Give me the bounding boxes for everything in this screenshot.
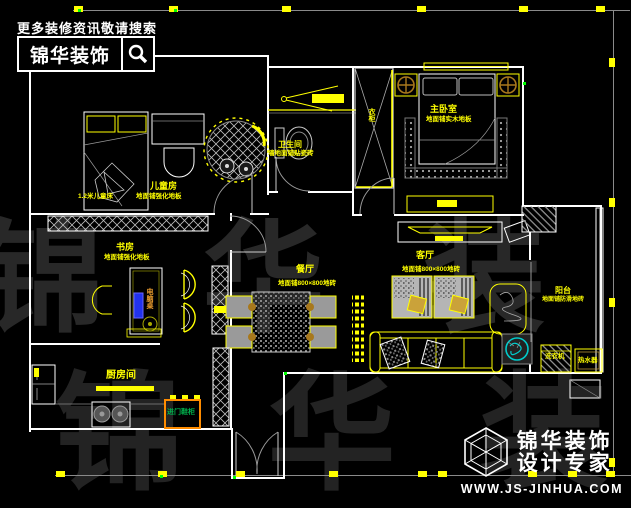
room-sub-study: 地面铺强化地板 bbox=[104, 254, 150, 261]
wall-segment bbox=[250, 213, 269, 215]
label-washer: 洗衣机 bbox=[545, 353, 565, 360]
desk-chair bbox=[164, 148, 194, 177]
wall-segment bbox=[231, 428, 233, 479]
jinhua-cube-logo bbox=[461, 425, 511, 479]
living-room bbox=[370, 221, 532, 372]
wall-segment bbox=[267, 191, 278, 193]
door-arc bbox=[230, 216, 266, 252]
snap-point bbox=[160, 475, 163, 478]
tv bbox=[408, 227, 492, 233]
wall-segment bbox=[230, 345, 232, 429]
brand-search-box[interactable]: 锦华装饰 bbox=[17, 36, 155, 72]
radiator bbox=[127, 329, 161, 337]
footer-logo-block: 锦华装饰 设计专家 WWW.JS-JINHUA.COM bbox=[461, 425, 623, 496]
snap-point bbox=[78, 9, 81, 12]
dimension-tick bbox=[519, 6, 528, 12]
chaise bbox=[490, 284, 526, 334]
wall-segment bbox=[352, 214, 362, 216]
dimension-tick bbox=[438, 471, 447, 477]
sofa bbox=[370, 332, 502, 372]
footer-url[interactable]: WWW.JS-JINHUA.COM bbox=[461, 482, 623, 496]
room-label-master: 主卧室 bbox=[430, 104, 457, 114]
column bbox=[522, 206, 556, 232]
header-tagline: 更多装修资讯敬请搜索 bbox=[17, 18, 157, 37]
snap-point bbox=[174, 9, 177, 12]
footer-brand: 锦华装饰 bbox=[517, 430, 613, 452]
search-icon[interactable] bbox=[123, 43, 153, 65]
door-arc bbox=[360, 178, 394, 214]
wall-segment bbox=[394, 214, 524, 216]
label-wardrobe: 衣柜 bbox=[367, 108, 375, 122]
label-shoe-cabinet: 进门鞋柜 bbox=[167, 409, 195, 417]
dimension-tick bbox=[282, 6, 291, 12]
room-label-kitchen: 厨房间 bbox=[106, 370, 136, 382]
wall-segment bbox=[29, 55, 31, 432]
room-label-dining: 餐厅 bbox=[296, 264, 314, 274]
monitor bbox=[134, 293, 143, 318]
label-heater: 热水器 bbox=[578, 357, 598, 364]
dining-room bbox=[226, 292, 364, 362]
room-label-children: 儿童房 bbox=[150, 181, 177, 191]
room-label-bathroom: 卫生间 bbox=[278, 140, 302, 149]
label-computer-desk: 电脑桌 bbox=[145, 288, 153, 309]
door-arcs bbox=[236, 432, 278, 474]
wall-segment bbox=[267, 55, 269, 195]
chair bbox=[92, 286, 112, 314]
wall-segment bbox=[29, 213, 215, 215]
note-children-bed: 1.2米儿童床 bbox=[78, 193, 113, 200]
room-sub-bathroom: 墙地面铺贴瓷砖 bbox=[268, 150, 314, 157]
snap-point bbox=[523, 82, 526, 85]
wall-segment bbox=[522, 66, 524, 207]
bathroom bbox=[268, 86, 356, 191]
decor-screen bbox=[352, 294, 364, 362]
master-bedroom bbox=[355, 63, 519, 214]
room-label-balcony: 阳台 bbox=[555, 286, 571, 295]
pillow bbox=[459, 78, 493, 95]
armchair bbox=[392, 276, 432, 318]
study-room bbox=[48, 216, 266, 337]
snap-point bbox=[233, 476, 236, 479]
pillow bbox=[87, 116, 115, 132]
snap-point bbox=[284, 372, 287, 375]
shower-note bbox=[312, 94, 344, 103]
wall-segment bbox=[529, 232, 531, 260]
cushion bbox=[421, 340, 445, 368]
pillow bbox=[118, 116, 146, 132]
dimension-tick bbox=[609, 298, 615, 307]
dimension-tick bbox=[609, 58, 615, 67]
armchair bbox=[434, 276, 474, 318]
dimension-tick bbox=[329, 471, 338, 477]
dimension-tick bbox=[236, 471, 245, 477]
brand-name: 锦华装饰 bbox=[19, 41, 121, 68]
dimension-tick bbox=[56, 471, 65, 477]
wall-segment bbox=[29, 343, 160, 345]
room-sub-children: 地面铺强化地板 bbox=[136, 193, 182, 200]
floorplan-canvas: 锦 华 装 饰 锦 华 装 更多装修资讯敬请搜索 锦华装饰 bbox=[0, 0, 631, 508]
dimension-tick bbox=[596, 6, 605, 12]
wall-segment bbox=[230, 213, 232, 221]
dimension-tick bbox=[418, 471, 427, 477]
room-label-living: 客厅 bbox=[416, 250, 434, 260]
room-sub-living: 地面铺800×800地砖 bbox=[402, 266, 460, 273]
wall-segment bbox=[352, 66, 354, 216]
cushion bbox=[380, 337, 410, 369]
wall-segment bbox=[308, 191, 354, 193]
entry-door bbox=[236, 432, 278, 476]
dimension-tick bbox=[417, 6, 426, 12]
cabinet bbox=[48, 216, 208, 231]
wall-segment bbox=[231, 477, 285, 479]
side-table bbox=[502, 334, 532, 364]
footer-tagline: 设计专家 bbox=[517, 452, 613, 474]
door-arc bbox=[214, 175, 252, 213]
desk bbox=[152, 114, 204, 144]
kitchen-underline bbox=[96, 386, 154, 391]
room-sub-balcony: 地面铺防滑地砖 bbox=[542, 297, 584, 304]
wall-segment bbox=[29, 428, 233, 430]
tall-cabinet bbox=[213, 348, 229, 426]
room-sub-dining: 地面铺800×800地砖 bbox=[278, 280, 336, 287]
dining-table bbox=[252, 292, 310, 352]
shower-head bbox=[282, 97, 287, 102]
dimension-tick bbox=[609, 198, 615, 207]
door-arc bbox=[276, 157, 310, 191]
pillow bbox=[423, 78, 457, 95]
room-sub-master: 地面铺实木地板 bbox=[426, 116, 472, 123]
room-label-study: 书房 bbox=[116, 242, 134, 252]
wall-segment bbox=[283, 372, 285, 479]
